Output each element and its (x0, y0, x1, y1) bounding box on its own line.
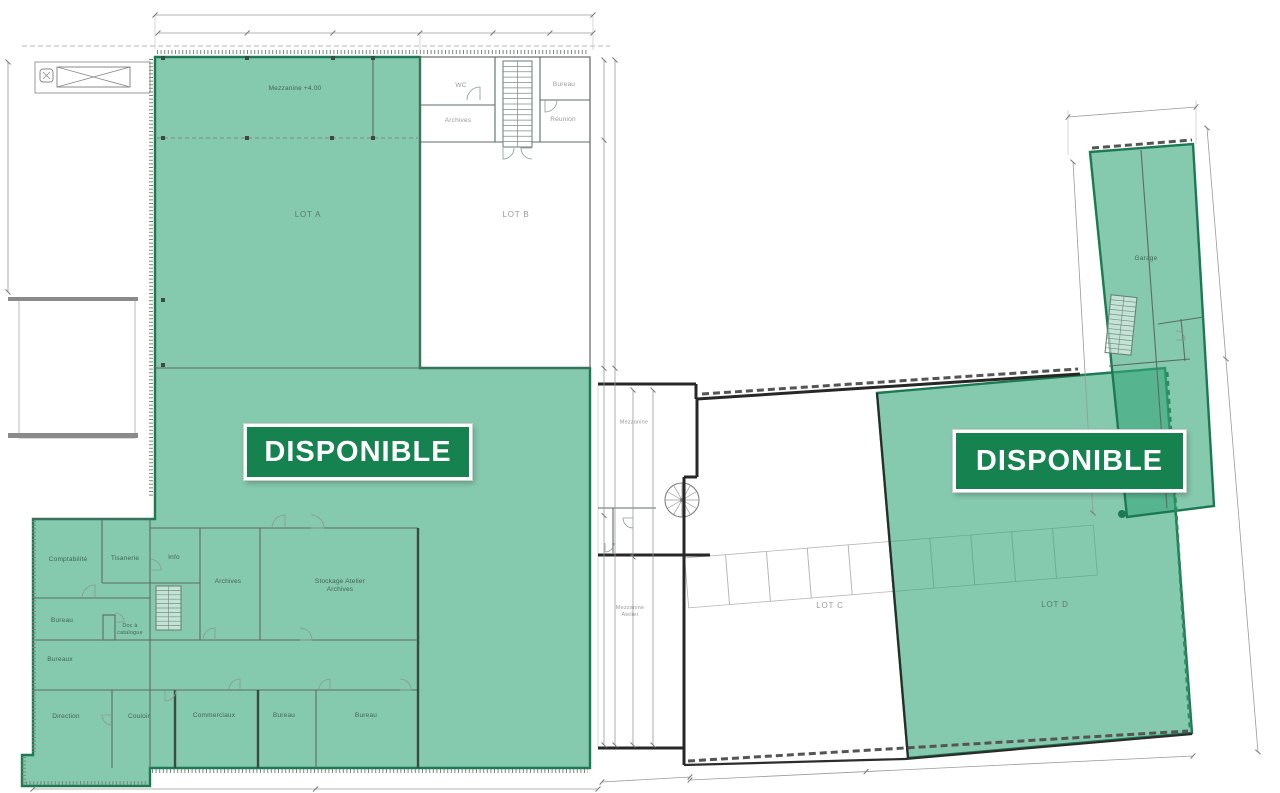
room-label-tisanerie: Tisanerie (111, 555, 139, 563)
room-label-bureau-bottom-2: Bureau (355, 712, 377, 720)
room-label-stockage: Stockage Atelier Archives (315, 578, 365, 594)
room-label-bureau-bottom-1: Bureau (273, 712, 295, 720)
lot-b-label: LOT B (503, 210, 530, 220)
room-label-direction: Direction (52, 713, 79, 721)
room-label-mezzanine-hall: Mezzanine +4.00 (269, 85, 322, 93)
spiral-staircase (665, 483, 699, 517)
room-label-bureau-top: Bureau (553, 81, 575, 89)
room-label-reunion: Réunion (550, 116, 576, 124)
room-label-archives-mid: Archives (215, 578, 242, 586)
left-annex (8, 297, 138, 438)
room-label-garage: Garage (1135, 255, 1158, 263)
awning-dock (35, 62, 150, 93)
connector-section (598, 58, 710, 748)
room-label-archives-top: Archives (445, 117, 472, 125)
lot-c-label: LOT C (816, 601, 843, 611)
disponible-banner-right[interactable]: DISPONIBLE (953, 430, 1186, 492)
room-label-info: Info (168, 554, 180, 562)
floorplan-canvas: Mezzanine +4.00 LOT A LOT B WC Bureau Ar… (0, 0, 1280, 793)
lot-b-staircase (503, 61, 532, 147)
room-label-bureau-left: Bureau (51, 617, 73, 625)
lot-d-label: LOT D (1041, 600, 1068, 610)
lot-a-label: LOT A (295, 210, 322, 220)
plan-linework (0, 0, 1280, 793)
room-label-comptabilite: Comptabilité (49, 556, 88, 564)
room-label-bureaux-left: Bureaux (47, 656, 73, 664)
room-label-mezzanine-connector: Mezzanine (620, 420, 648, 427)
disponible-banner-left[interactable]: DISPONIBLE (244, 424, 472, 480)
room-label-mezzanine-atelier: Mezzanine Atelier (616, 605, 644, 619)
room-label-doc-catalogue: Doc à catalogue (117, 623, 143, 637)
garage-staircase (1105, 295, 1137, 355)
office-staircase (156, 586, 181, 630)
room-label-wc: WC (455, 82, 466, 90)
room-label-commerciaux: Commerciaux (193, 712, 235, 720)
room-label-couloir: Couloir (128, 713, 150, 721)
column-marker (1118, 510, 1126, 518)
